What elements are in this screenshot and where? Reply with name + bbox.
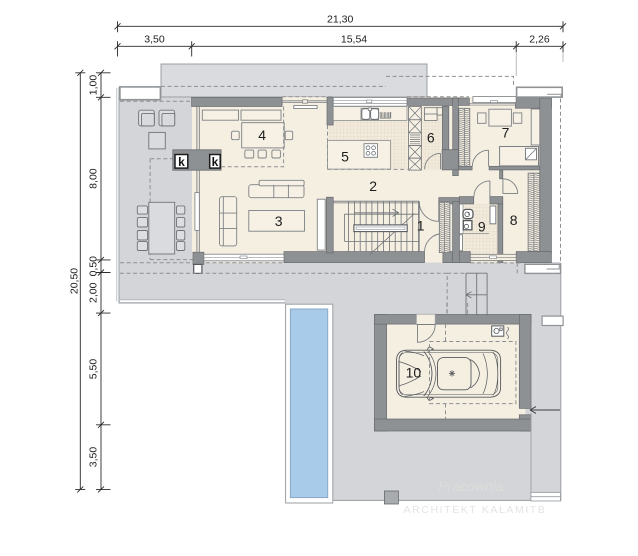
svg-text:4: 4: [258, 127, 266, 143]
svg-text:7: 7: [502, 125, 510, 141]
svg-text:5: 5: [341, 149, 349, 165]
svg-text:21,30: 21,30: [327, 14, 353, 26]
svg-text:3,50: 3,50: [88, 447, 100, 468]
svg-text:8,00: 8,00: [88, 168, 100, 189]
svg-text:k: k: [178, 155, 185, 169]
svg-text:3,50: 3,50: [144, 34, 165, 46]
svg-text:20,50: 20,50: [69, 268, 81, 294]
svg-text:2,26: 2,26: [529, 34, 550, 46]
svg-text:ARCHITEKT KAŁAMITB: ARCHITEKT KAŁAMITB: [404, 504, 547, 516]
svg-text:6: 6: [427, 129, 435, 145]
svg-text:1,00: 1,00: [88, 75, 100, 96]
svg-text:15,54: 15,54: [341, 34, 367, 46]
svg-text:8: 8: [510, 212, 518, 228]
svg-text:10: 10: [406, 364, 422, 380]
svg-text:1: 1: [417, 217, 425, 233]
svg-text:5,50: 5,50: [88, 359, 100, 380]
svg-text:k: k: [212, 155, 219, 169]
svg-text:2,00: 2,00: [88, 282, 100, 303]
svg-text:0,50: 0,50: [88, 256, 100, 277]
svg-text:2: 2: [369, 178, 377, 194]
svg-text:3: 3: [275, 213, 283, 229]
svg-text:9: 9: [478, 219, 486, 235]
svg-text:Pracownia: Pracownia: [438, 478, 504, 494]
